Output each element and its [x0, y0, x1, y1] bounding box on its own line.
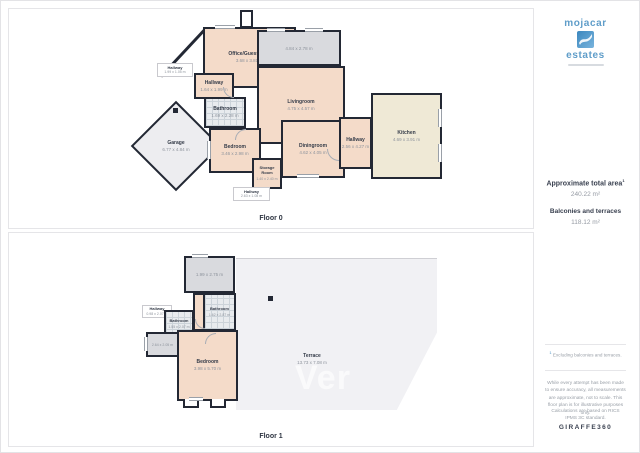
- room-dims: 4.84 x 2.78 m: [285, 46, 312, 51]
- room-dims: 2.63 x 1.08 m: [241, 194, 262, 198]
- room-dims: 1.40 x 2.40 m: [256, 177, 277, 181]
- room-name: Livingroom: [287, 99, 314, 105]
- room-dims: 1.99 x 1.05 m: [164, 70, 185, 74]
- label-hallway-bottom: Hallway 2.63 x 1.08 m: [233, 187, 270, 201]
- window: [215, 25, 235, 29]
- room-name: Bedroom: [224, 144, 246, 150]
- room-dims: 4.69 x 3.91 m: [393, 137, 420, 142]
- room-dims: 1.55 x 2.07 m: [168, 325, 189, 329]
- label-hallway-left: Hallway 1.99 x 1.05 m: [157, 63, 193, 77]
- room-dims: 6.77 x 4.84 m: [162, 147, 189, 152]
- giraffe360-logo: GIRAFFE360: [537, 424, 634, 431]
- room-dims: 4.62 x 4.05 m: [299, 150, 326, 155]
- room-bathroom: Bathroom 1.69 x 2.28 m: [204, 97, 246, 128]
- room-bathroom-right1: Bathroom 1.62 x 2.87 m: [203, 293, 236, 331]
- floor0-panel: Office/Guestroom 3.68 x 3.81 m 4.84 x 2.…: [8, 8, 534, 229]
- total-area-value: 240.22 m²: [537, 191, 634, 198]
- footnote-mark: 1: [549, 350, 551, 355]
- terrace-pillar: [268, 296, 273, 301]
- logo-word-bottom: estates: [537, 50, 634, 61]
- room-name: Bedroom: [197, 359, 219, 365]
- room-name: Terrace: [303, 353, 321, 359]
- watermark-text: Ver: [295, 359, 351, 398]
- total-area-title-text: Approximate total area: [546, 180, 622, 187]
- room-name: Bathroom: [213, 106, 237, 112]
- balconies-value: 118.12 m²: [537, 219, 634, 226]
- logo-word-top: mojacar: [537, 18, 634, 29]
- bay-window: [210, 399, 226, 408]
- room-dims: 1.62 x 2.87 m: [209, 313, 230, 317]
- room-storage: Storage Room 1.40 x 2.40 m: [252, 158, 282, 189]
- logo-tagline: [568, 64, 604, 66]
- chimney-outline: [240, 10, 253, 28]
- total-area-footnote-mark: 1: [622, 178, 624, 183]
- room-hallway-right: Hallway 2.56 x 4.27 m: [339, 117, 372, 169]
- room-balcony-top1: 1.99 x 2.75 m: [184, 256, 235, 293]
- room-garage-label: Garage 6.77 x 4.84 m: [148, 137, 204, 155]
- footnote: 1 Excluding balconies and terraces.: [541, 350, 630, 358]
- room-name: Garage: [167, 140, 184, 146]
- window: [192, 254, 208, 258]
- room-dims: 1.69 x 2.28 m: [211, 113, 238, 118]
- terrace-edge: [236, 258, 437, 259]
- logo-wave-icon: [577, 31, 594, 48]
- window: [267, 28, 285, 32]
- window: [297, 174, 319, 178]
- room-dims: 3.98 x 5.70 m: [194, 366, 221, 371]
- floor1-panel: Terrace 13.73 x 7.08 m Ver 1.99 x 2.75 m…: [8, 232, 534, 447]
- room-name: Storage Room: [254, 166, 280, 176]
- window: [305, 28, 323, 32]
- room-name: Hallway: [205, 80, 224, 86]
- floor0-label: Floor 0: [9, 215, 533, 222]
- room-terrace-top: 4.84 x 2.78 m: [257, 30, 341, 66]
- window: [189, 397, 203, 401]
- room-name: Bathroom: [210, 307, 229, 312]
- brand-logo-block: mojacar estates: [537, 18, 634, 66]
- room-balcony-left1: 2.64 x 2.05 m: [146, 332, 179, 357]
- room-name: Kitchen: [397, 130, 415, 136]
- area-summary: Approximate total area1 240.22 m² Balcon…: [537, 178, 634, 226]
- floorplan-page: Office/Guestroom 3.68 x 3.81 m 4.84 x 2.…: [0, 0, 640, 453]
- room-name: Diningroom: [299, 143, 327, 149]
- room-kitchen: Kitchen 4.69 x 3.91 m: [371, 93, 442, 179]
- footnote-text: Excluding balconies and terraces.: [553, 353, 622, 358]
- garage-pillar: [173, 108, 178, 113]
- total-area-title: Approximate total area1: [537, 178, 634, 187]
- standard-text: Calculations are based on RICS IPMS 3C s…: [545, 408, 626, 423]
- room-dims: 2.56 x 4.27 m: [342, 144, 369, 149]
- sidebar: mojacar estates Approximate total area1 …: [537, 8, 634, 447]
- divider: [545, 344, 626, 345]
- divider: [545, 370, 626, 371]
- room-name: Bathroom: [170, 319, 189, 324]
- balconies-title: Balconies and terraces: [537, 208, 634, 215]
- window: [438, 109, 442, 127]
- window: [438, 144, 442, 162]
- window: [207, 141, 211, 159]
- room-dims: 3.46 x 2.98 m: [221, 151, 248, 156]
- floor1-label: Floor 1: [9, 433, 533, 440]
- room-dims: 2.64 x 2.05 m: [152, 343, 173, 347]
- window: [144, 337, 148, 351]
- room-dims: 4.75 x 4.57 m: [287, 106, 314, 111]
- room-dims: 1.99 x 2.75 m: [196, 272, 223, 277]
- room-name: Hallway: [346, 137, 365, 143]
